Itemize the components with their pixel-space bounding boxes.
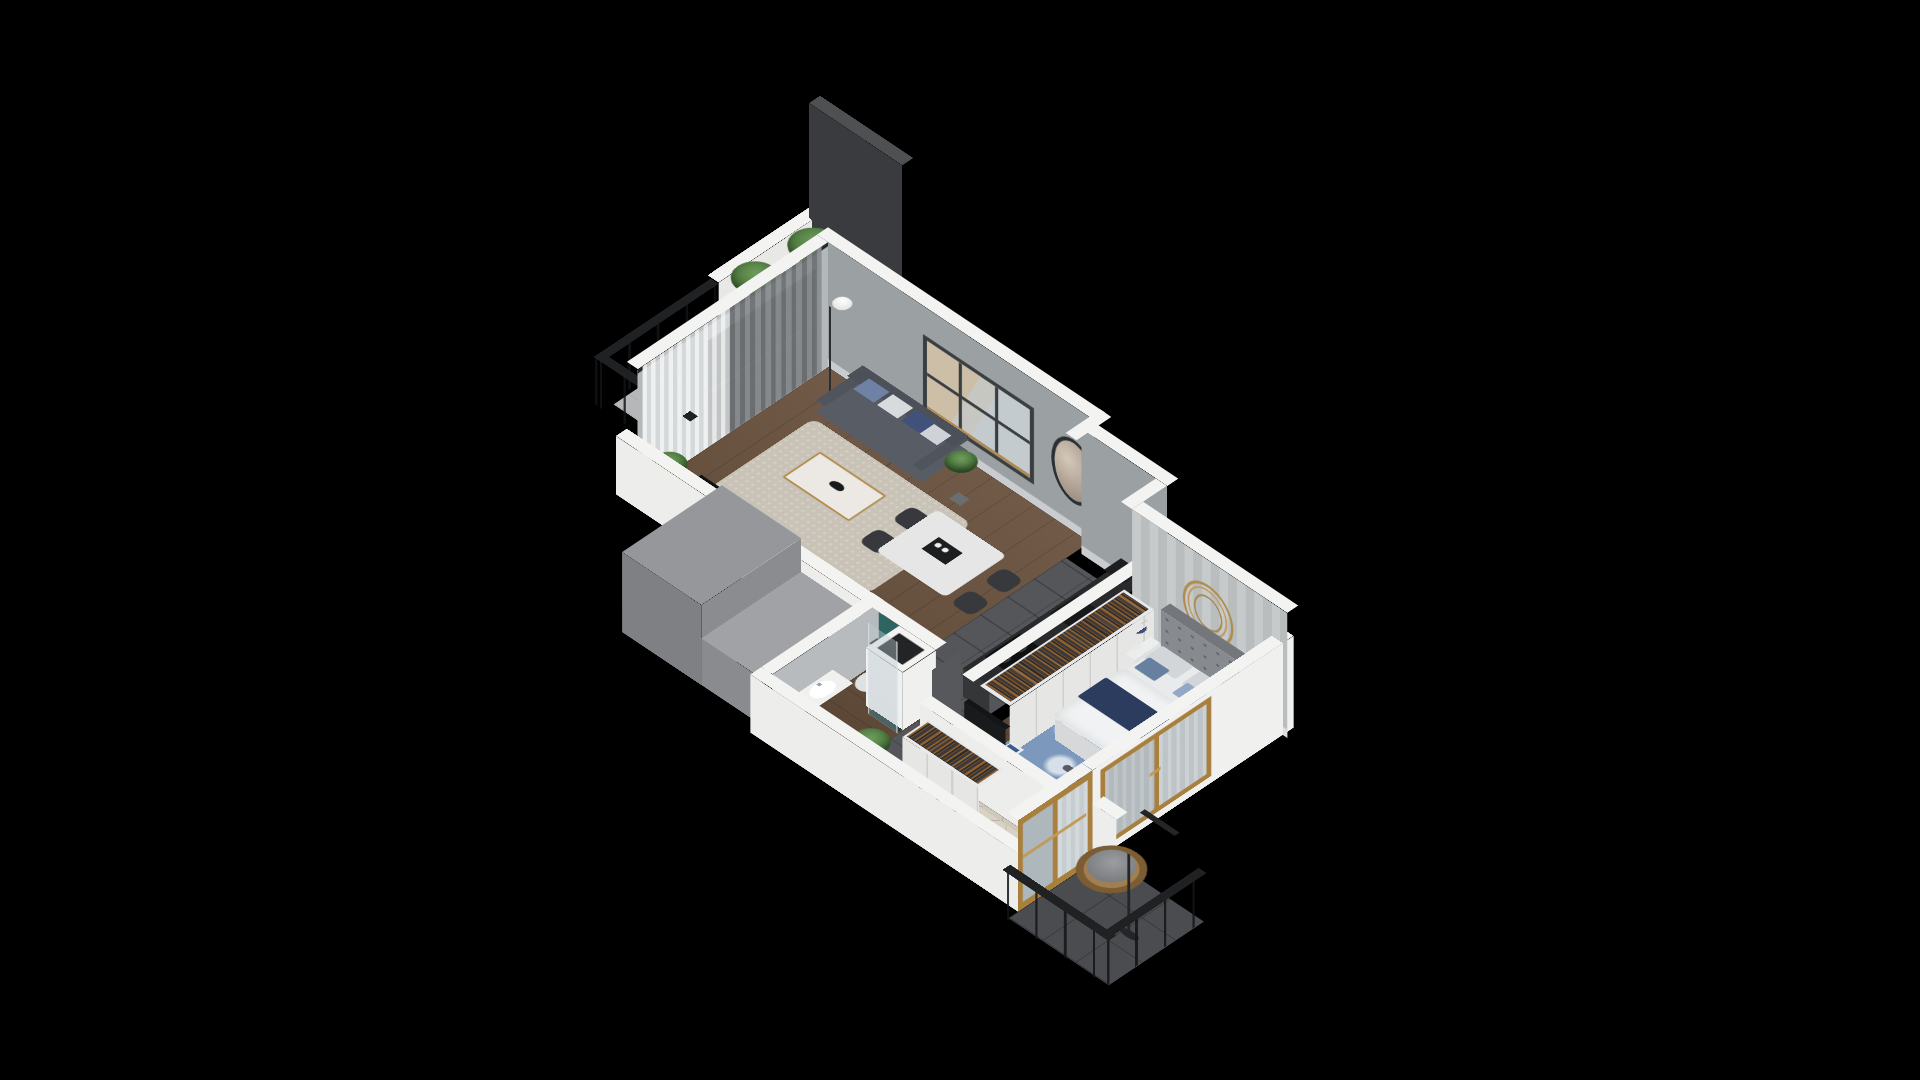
render-canvas (0, 0, 1920, 1080)
